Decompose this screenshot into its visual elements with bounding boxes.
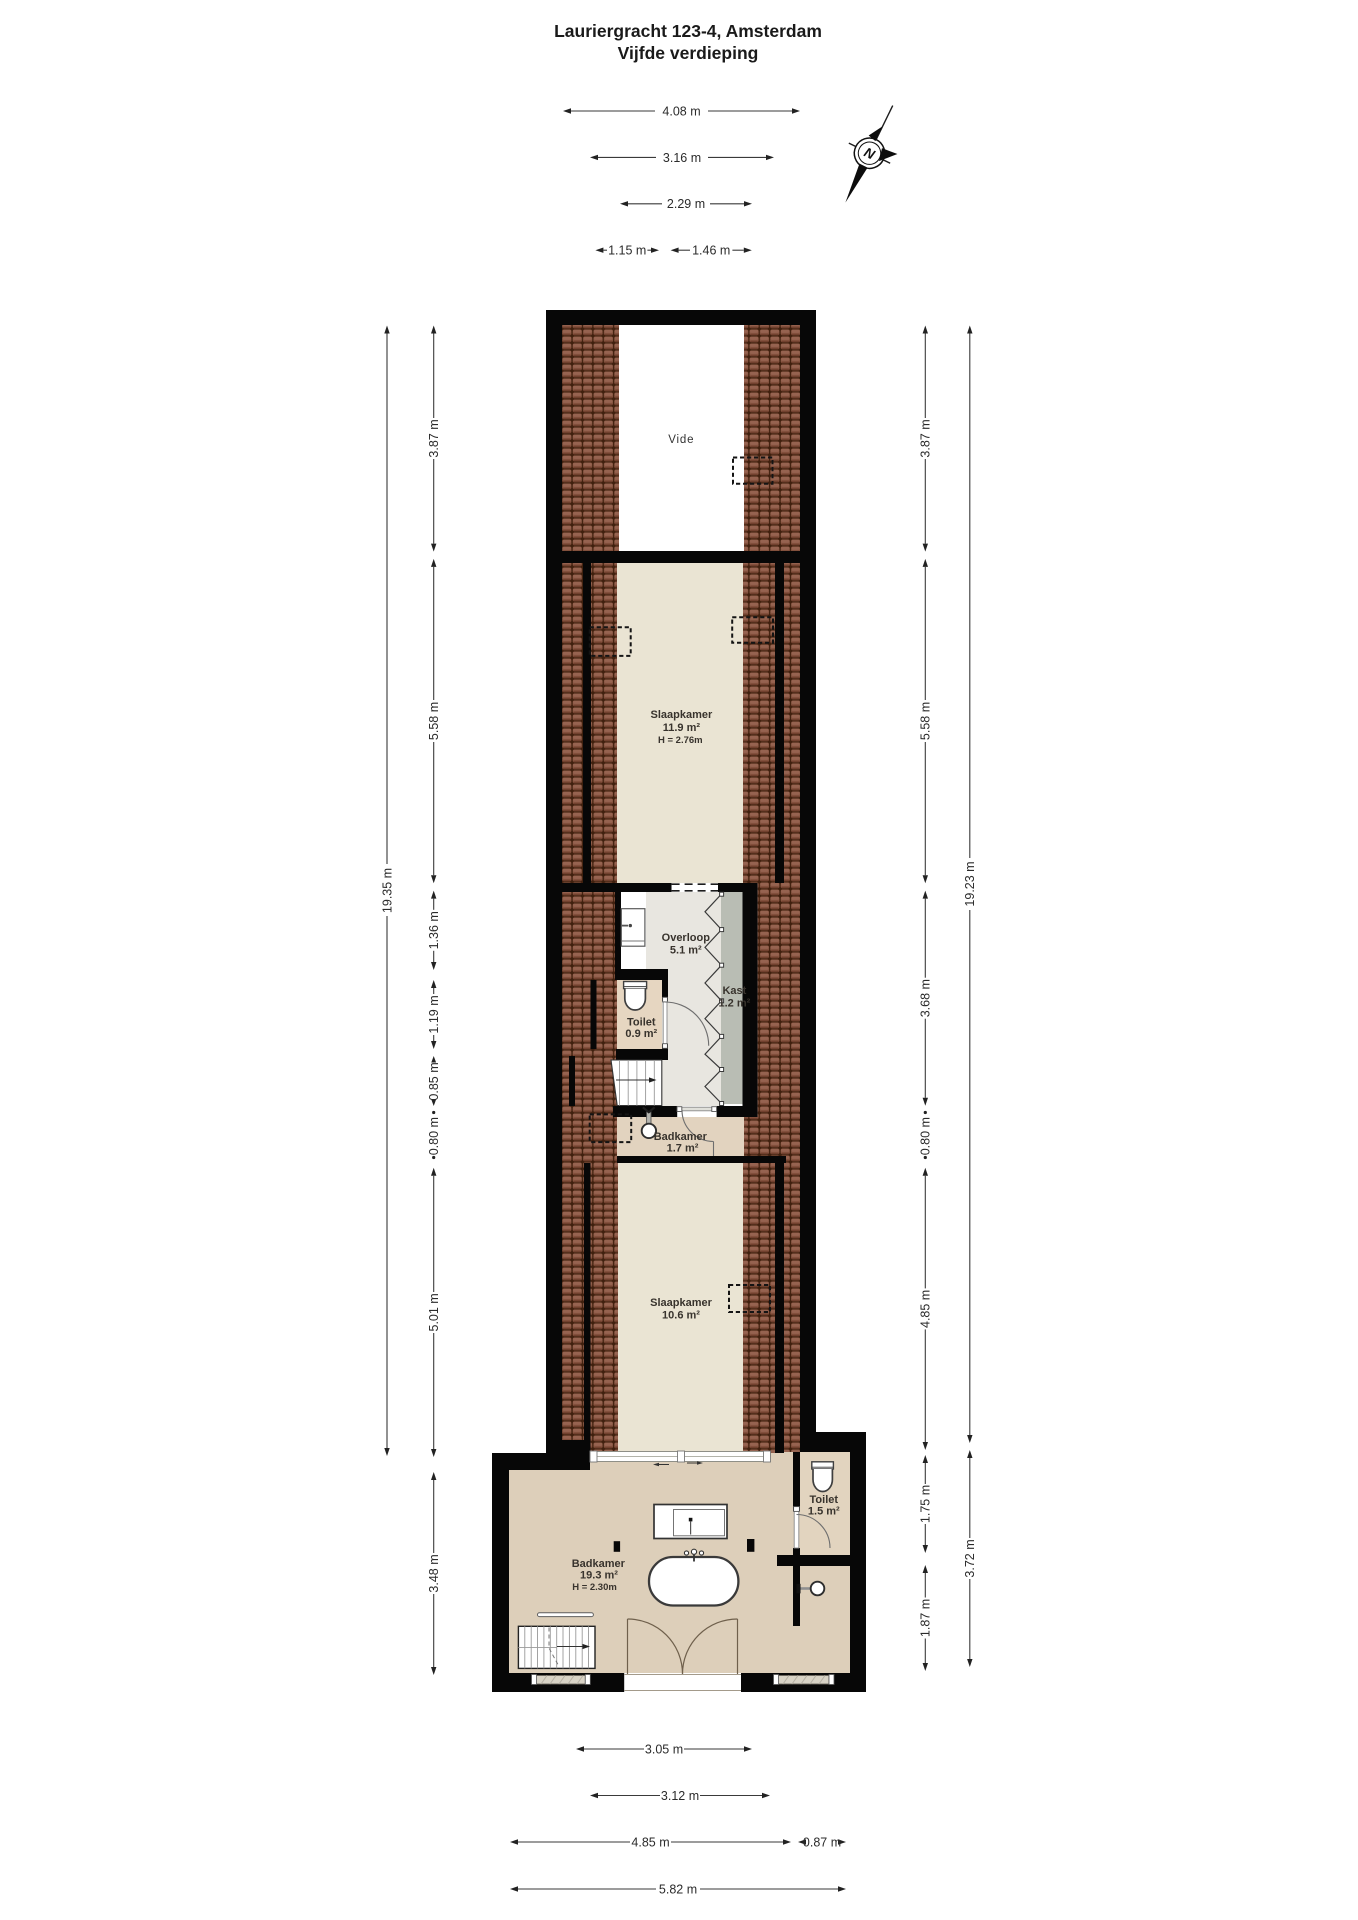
svg-text:5.1 m²: 5.1 m² [670, 945, 702, 957]
svg-text:4.85 m: 4.85 m [631, 1835, 669, 1849]
svg-text:1.5 m²: 1.5 m² [808, 1506, 840, 1518]
svg-text:3.12 m: 3.12 m [661, 1789, 699, 1803]
svg-text:Vijfde verdieping: Vijfde verdieping [618, 43, 759, 63]
svg-text:4.85 m: 4.85 m [919, 1290, 933, 1328]
svg-text:3.87 m: 3.87 m [919, 419, 933, 457]
svg-text:Toilet: Toilet [810, 1494, 839, 1506]
svg-text:19.23 m: 19.23 m [963, 861, 977, 906]
svg-text:Slaapkamer: Slaapkamer [651, 709, 713, 721]
svg-text:Toilet: Toilet [627, 1017, 656, 1029]
svg-text:0.80 m: 0.80 m [427, 1117, 441, 1155]
svg-text:1.19 m: 1.19 m [427, 995, 441, 1033]
svg-text:19.3 m²: 19.3 m² [580, 1570, 618, 1582]
svg-text:Slaapkamer: Slaapkamer [650, 1297, 712, 1309]
svg-text:19.35 m: 19.35 m [380, 868, 394, 913]
svg-text:1.87 m: 1.87 m [919, 1599, 933, 1637]
svg-text:5.82 m: 5.82 m [659, 1882, 697, 1896]
svg-text:Overloop: Overloop [662, 932, 711, 944]
svg-text:H = 2.76m: H = 2.76m [658, 735, 703, 746]
svg-text:3.48 m: 3.48 m [427, 1554, 441, 1592]
svg-text:3.87 m: 3.87 m [427, 419, 441, 457]
svg-text:11.9 m²: 11.9 m² [663, 722, 701, 734]
svg-text:1.15 m: 1.15 m [608, 244, 646, 258]
svg-text:H = 2.30m: H = 2.30m [572, 1582, 617, 1593]
svg-text:5.58 m: 5.58 m [919, 702, 933, 740]
svg-text:1.7 m²: 1.7 m² [667, 1143, 699, 1155]
svg-text:4.08 m: 4.08 m [662, 104, 700, 118]
svg-text:5.58 m: 5.58 m [427, 702, 441, 740]
svg-text:5.01 m: 5.01 m [427, 1293, 441, 1331]
svg-text:0.80 m: 0.80 m [919, 1117, 933, 1155]
svg-text:3.05 m: 3.05 m [645, 1742, 683, 1756]
svg-text:Lauriergracht 123-4, Amsterdam: Lauriergracht 123-4, Amsterdam [554, 21, 822, 41]
svg-text:1.2 m²: 1.2 m² [719, 998, 751, 1010]
svg-text:Vide: Vide [668, 434, 694, 446]
svg-text:Kast: Kast [722, 985, 746, 997]
svg-text:0.85 m: 0.85 m [427, 1062, 441, 1100]
svg-text:1.75 m: 1.75 m [919, 1485, 933, 1523]
svg-text:3.68 m: 3.68 m [919, 979, 933, 1017]
svg-text:3.16 m: 3.16 m [663, 151, 701, 165]
svg-text:1.46 m: 1.46 m [692, 244, 730, 258]
svg-text:3.72 m: 3.72 m [963, 1539, 977, 1577]
svg-text:Badkamer: Badkamer [654, 1131, 708, 1143]
svg-text:0.9 m²: 0.9 m² [625, 1028, 657, 1040]
svg-text:0.87 m: 0.87 m [803, 1835, 841, 1849]
svg-text:10.6 m²: 10.6 m² [662, 1310, 700, 1322]
svg-text:Badkamer: Badkamer [572, 1558, 626, 1570]
svg-text:2.29 m: 2.29 m [667, 197, 705, 211]
svg-text:1.36 m: 1.36 m [427, 911, 441, 949]
